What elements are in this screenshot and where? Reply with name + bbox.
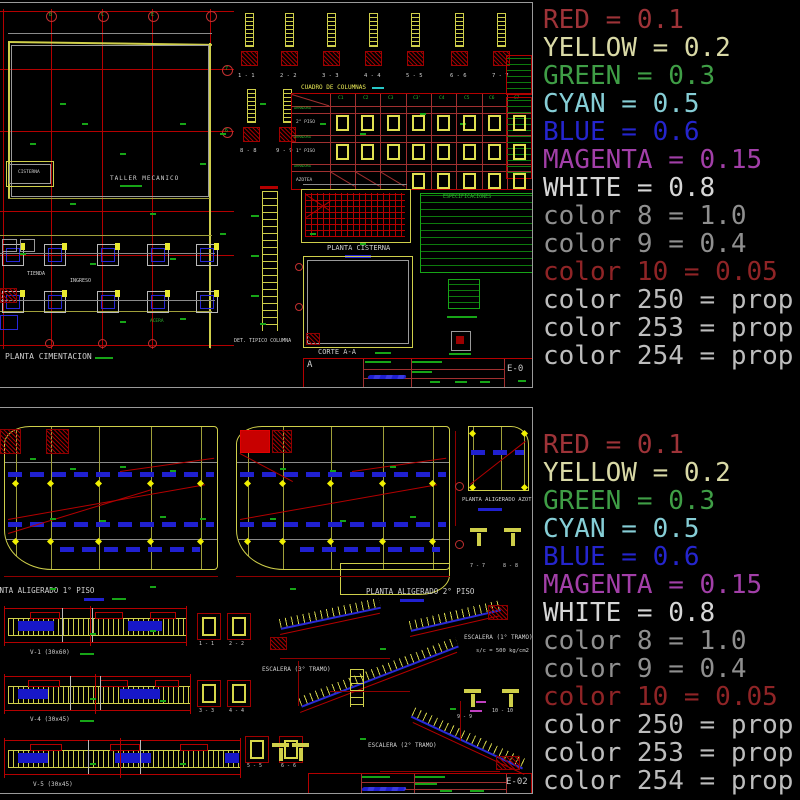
axis-bubble xyxy=(206,11,217,22)
dim-line xyxy=(4,642,186,643)
legend-entry: RED = 0.1 xyxy=(543,6,800,34)
column-hatch xyxy=(0,429,21,454)
section-label: 5 - 5 xyxy=(406,74,423,80)
axis-bubble xyxy=(455,482,464,491)
beam-label: V-4 (30x45) xyxy=(30,717,70,723)
legend-entry: color 9 = 0.4 xyxy=(543,655,800,683)
section-label: 2 - 2 xyxy=(229,642,244,647)
column-section-glyph xyxy=(361,144,374,160)
footing-section-detail xyxy=(238,87,264,147)
cut-line xyxy=(92,608,93,642)
title-note xyxy=(412,371,432,373)
col-header: C3' xyxy=(413,97,421,102)
scale-note xyxy=(372,87,384,89)
signature-scribble xyxy=(367,375,406,379)
column-section-glyph xyxy=(387,115,400,131)
dim-line xyxy=(380,771,500,772)
column-section-glyph xyxy=(463,173,476,189)
annotation-marks xyxy=(30,458,36,460)
section-label: 8 - 8 xyxy=(503,564,518,569)
taller-label: TALLER MECANICO xyxy=(110,176,179,182)
baston xyxy=(150,612,176,619)
scale-note xyxy=(84,598,104,601)
section-label: 3 - 3 xyxy=(199,709,214,714)
column-section-glyph xyxy=(412,173,425,189)
title-note xyxy=(455,381,467,383)
azotea-title: PLANTA ALIGERADO AZOTEA xyxy=(462,498,533,504)
legend-entry: YELLOW = 0.2 xyxy=(543,459,800,487)
section-label: 3 - 3 xyxy=(322,74,339,80)
landing-hatch xyxy=(270,637,287,650)
cad-preview-page: { "legend": { "entries": [ {"text": "RED… xyxy=(0,0,800,800)
col-header: C6 xyxy=(489,97,494,102)
sheet-bottom-slab-plans: PLANTA ALIGERADO 1° PISO PLANTA ALIGERAD… xyxy=(0,407,533,794)
footing xyxy=(97,291,119,313)
mini-table xyxy=(448,279,480,309)
rebar-band xyxy=(60,547,200,552)
section-label: 6 - 6 xyxy=(281,764,296,769)
footing-tie-line xyxy=(0,300,215,301)
legend-entry: color 254 = prop xyxy=(543,767,800,795)
stair-title: ESCALERA (2° TRAMO) xyxy=(368,743,437,749)
axis-bubble xyxy=(98,339,107,348)
legend-entry: WHITE = 0.8 xyxy=(543,174,800,202)
footing-section-detail xyxy=(446,11,472,71)
baston xyxy=(110,744,140,751)
axis-label: E xyxy=(151,13,154,18)
axis-bubble xyxy=(295,263,303,271)
plan1-title: PLANTA ALIGERADO 1° PISO xyxy=(0,587,94,595)
dim-tick xyxy=(90,606,91,646)
beam-t-section xyxy=(502,526,524,548)
legend-entry: color 250 = prop xyxy=(543,286,800,314)
legend-entry: GREEN = 0.3 xyxy=(543,487,800,515)
stair-section-detail xyxy=(462,687,484,709)
cut-line xyxy=(100,676,101,710)
column-hatch xyxy=(46,429,69,454)
section-label: 6 - 6 xyxy=(450,74,467,80)
baston xyxy=(30,612,60,619)
baston xyxy=(30,744,62,751)
tick xyxy=(251,295,259,297)
stair-title: ESCALERA (1° TRAMO) xyxy=(464,635,533,641)
beam-section xyxy=(227,680,251,707)
beam-label: V-5 (30x45) xyxy=(33,782,73,788)
row-label: AZOTEA xyxy=(296,179,312,184)
cut-line xyxy=(70,676,71,710)
beam-label: V-1 (30x60) xyxy=(30,650,70,656)
baston xyxy=(28,680,60,687)
title-block-letter: A xyxy=(307,361,312,370)
dim-line xyxy=(455,431,456,526)
scale-note xyxy=(112,598,126,600)
footing-section-detail xyxy=(360,11,386,71)
title-note xyxy=(365,361,391,363)
dim-line xyxy=(4,576,218,577)
small-box xyxy=(0,315,18,330)
title-note xyxy=(440,790,452,792)
section-label: 9 - 9 xyxy=(457,715,472,720)
note-bar xyxy=(447,316,477,318)
notes-box xyxy=(506,55,532,95)
footing-section-detail xyxy=(236,11,262,71)
column-section-glyph xyxy=(513,115,526,131)
dim-line xyxy=(4,774,240,775)
stair-section-detail xyxy=(500,687,522,709)
axis-bubble xyxy=(148,339,157,348)
axis-label: 7 xyxy=(225,67,228,72)
legend-entry: RED = 0.1 xyxy=(543,431,800,459)
column-section-glyph xyxy=(412,144,425,160)
column-section-glyph xyxy=(361,115,374,131)
column-section-glyph xyxy=(437,115,450,131)
dim-line xyxy=(330,691,410,692)
column-section-glyph xyxy=(412,115,425,131)
beam-section xyxy=(197,613,221,640)
col-header: C2 xyxy=(363,97,368,102)
magenta-dim xyxy=(476,701,486,703)
title-note xyxy=(362,776,390,778)
column-section-glyph xyxy=(336,115,349,131)
section-label: 4 - 4 xyxy=(229,709,244,714)
col-header: C4 xyxy=(439,97,444,102)
especificaciones-table xyxy=(420,193,533,273)
legend-entry: color 8 = 1.0 xyxy=(543,202,800,230)
small-box xyxy=(20,239,35,252)
axis-label: 6 xyxy=(225,129,228,134)
column-section-glyph xyxy=(437,144,450,160)
azotea-outline xyxy=(468,426,529,491)
axis-bubble xyxy=(295,303,303,311)
notes-box xyxy=(506,97,532,179)
footing xyxy=(44,244,66,266)
col-header: C1 xyxy=(338,97,343,102)
beam-section xyxy=(197,680,221,707)
dim-line xyxy=(236,576,450,577)
axis-bubble xyxy=(455,540,464,549)
ladder-top-mark xyxy=(260,186,278,189)
legend-entry: color 10 = 0.05 xyxy=(543,258,800,286)
title-note xyxy=(518,380,526,382)
detail-title: DET. TIPICO COLUMNA xyxy=(234,339,291,344)
stair-section-detail xyxy=(290,741,312,763)
small-box xyxy=(2,239,17,252)
corte-inner xyxy=(307,260,409,344)
rebar-band xyxy=(471,450,524,455)
footing-section-detail xyxy=(402,11,428,71)
legend-entry: BLUE = 0.6 xyxy=(543,543,800,571)
stair-section-detail xyxy=(270,741,292,763)
footing-section-detail xyxy=(318,11,344,71)
col-header: C5 xyxy=(464,97,469,102)
legend-entry: BLUE = 0.6 xyxy=(543,118,800,146)
tick xyxy=(251,215,259,217)
title-note xyxy=(470,790,484,792)
column-section-glyph xyxy=(463,115,476,131)
stair-dim xyxy=(300,652,457,713)
row-label: 1° PISO xyxy=(296,150,315,155)
section-label: 4 - 4 xyxy=(364,74,381,80)
pen-weight-legend-top: RED = 0.1YELLOW = 0.2GREEN = 0.3CYAN = 0… xyxy=(543,6,800,374)
dim-tick xyxy=(186,606,187,646)
column-ladder-detail xyxy=(262,191,278,331)
footing xyxy=(196,244,218,266)
dim-tick xyxy=(190,674,191,714)
rebar-band xyxy=(240,472,446,477)
landing-hatch xyxy=(488,605,508,620)
row-label: ARMADURA xyxy=(294,107,311,111)
column-section-glyph xyxy=(463,144,476,160)
rebar-ladder xyxy=(350,669,364,707)
beam-section xyxy=(245,736,269,763)
column-section-glyph xyxy=(488,115,501,131)
axis-label: C xyxy=(101,13,104,18)
legend-entry: YELLOW = 0.2 xyxy=(543,34,800,62)
rebar-chunk xyxy=(225,753,239,763)
row-label: ARMADURA xyxy=(294,165,311,169)
row-label: ARMADURA xyxy=(294,136,311,140)
beam-section xyxy=(227,613,251,640)
column-section-glyph xyxy=(488,144,501,160)
column-section-glyph xyxy=(387,144,400,160)
wall-bottom xyxy=(8,198,210,199)
footing xyxy=(196,291,218,313)
cut-line xyxy=(62,608,63,642)
dim-tick xyxy=(95,674,96,714)
table-title: CUADRO DE COLUMNAS xyxy=(301,85,366,91)
dim-line xyxy=(4,608,186,609)
dim-line xyxy=(8,33,212,34)
cut-line xyxy=(140,740,141,774)
title-note xyxy=(480,381,490,383)
dim-tick xyxy=(120,738,121,778)
stair-title: ESCALERA (3° TRAMO) xyxy=(262,667,331,673)
dim-line xyxy=(460,701,461,741)
column-section-glyph xyxy=(437,173,450,189)
section-label: 5 - 5 xyxy=(247,764,262,769)
espec-title: ESPECIFICACIONES xyxy=(443,195,491,200)
dim-tick xyxy=(240,738,241,778)
column-hatch xyxy=(272,430,292,453)
scale-note xyxy=(95,357,113,359)
title-note xyxy=(430,381,440,383)
title-note xyxy=(415,776,445,778)
signature-scribble xyxy=(361,787,406,791)
cisterna-label: CISTERNA xyxy=(18,171,40,176)
stair-subtitle: s/c = 500 kg/cm2 xyxy=(476,649,529,655)
legend-entry: color 253 = prop xyxy=(543,314,800,342)
column-section-glyph xyxy=(513,173,526,189)
legend-entry: color 254 = prop xyxy=(543,342,800,370)
rebar-band xyxy=(8,472,214,477)
acera-label: ACERA xyxy=(150,320,164,325)
sheet-top-foundation-plan: B C E 7 6 CISTERNA TALLER MECANICO TIEND… xyxy=(0,2,533,388)
corte-title: CORTE A-A xyxy=(318,349,356,356)
scale-note xyxy=(80,720,94,722)
baston xyxy=(100,680,128,687)
cisterna-slab-mesh xyxy=(305,193,405,237)
annotation-marks xyxy=(60,103,66,105)
legend-entry: CYAN = 0.5 xyxy=(543,90,800,118)
legend-entry: GREEN = 0.3 xyxy=(543,62,800,90)
column-section-glyph xyxy=(488,173,501,189)
rebar-chunk xyxy=(18,621,54,631)
scale-note xyxy=(375,352,391,354)
section-label: 8 - 8 xyxy=(240,149,257,155)
rebar-chunk xyxy=(18,753,48,763)
section-label: 7 - 7 xyxy=(470,564,485,569)
title-note xyxy=(412,361,442,363)
row-label: 2° PISO xyxy=(296,121,315,126)
legend-entry: color 250 = prop xyxy=(543,711,800,739)
col-header: C3 xyxy=(388,97,393,102)
scale-note xyxy=(400,599,424,602)
section-label: 1 - 1 xyxy=(238,74,255,80)
scale-note xyxy=(478,508,502,511)
footing-tie-line xyxy=(0,253,215,254)
wall-lower-1 xyxy=(0,235,212,236)
legend-entry: MAGENTA = 0.15 xyxy=(543,146,800,174)
plan2-title: PLANTA ALIGERADO 2° PISO xyxy=(366,588,474,596)
pen-weight-legend-bottom: RED = 0.1YELLOW = 0.2GREEN = 0.3CYAN = 0… xyxy=(543,431,800,797)
note-bar xyxy=(449,353,471,355)
dim-line xyxy=(303,184,407,185)
hatch-block xyxy=(0,288,17,303)
column-section-glyph xyxy=(336,144,349,160)
rebar-chunk xyxy=(18,689,48,699)
plan-title-cisterna: PLANTA CISTERNA xyxy=(327,245,390,252)
sheet-number: E-02 xyxy=(506,778,528,787)
baston xyxy=(155,680,179,687)
axis-bubble xyxy=(45,339,54,348)
legend-entry: color 253 = prop xyxy=(543,739,800,767)
legend-entry: color 10 = 0.05 xyxy=(543,683,800,711)
footing xyxy=(97,244,119,266)
plan-title-cimentacion: PLANTA CIMENTACION xyxy=(5,353,92,361)
sheet-number: E-0 xyxy=(507,365,523,374)
legend-entry: color 8 = 1.0 xyxy=(543,627,800,655)
dim-tick xyxy=(4,674,5,714)
baston xyxy=(180,744,208,751)
rebar-chunk xyxy=(120,689,160,699)
footing-section-detail xyxy=(276,11,302,71)
dim-line xyxy=(4,740,240,741)
ingreso-label: INGRESO xyxy=(70,279,91,284)
landing-hatch xyxy=(496,756,520,770)
dim-tick xyxy=(4,738,5,778)
beam-t-section xyxy=(468,526,490,548)
stair-run xyxy=(279,598,381,630)
footing xyxy=(147,244,169,266)
title-note xyxy=(415,783,437,785)
section-label: 2 - 2 xyxy=(280,74,297,80)
scale-note xyxy=(120,185,142,187)
baston xyxy=(95,612,123,619)
dim-line xyxy=(280,658,390,659)
tick xyxy=(251,255,259,257)
dim-line xyxy=(4,710,190,711)
axis-label: B xyxy=(49,13,52,18)
hatch-block xyxy=(306,333,320,345)
section-label: 1 - 1 xyxy=(199,642,214,647)
footing xyxy=(147,291,169,313)
rebar-band xyxy=(300,547,440,552)
rebar-chunk xyxy=(128,621,162,631)
dim-tick xyxy=(4,606,5,646)
cut-line xyxy=(88,740,89,774)
tienda-label: TIENDA xyxy=(27,272,45,277)
column-solid xyxy=(240,430,270,453)
small-detail-mark xyxy=(456,336,464,344)
legend-entry: color 9 = 0.4 xyxy=(543,230,800,258)
section-label: 10 - 10 xyxy=(492,709,513,714)
scale-note xyxy=(80,653,94,655)
rebar-band xyxy=(240,522,446,527)
footing xyxy=(44,291,66,313)
legend-entry: MAGENTA = 0.15 xyxy=(543,571,800,599)
legend-entry: CYAN = 0.5 xyxy=(543,515,800,543)
legend-entry: WHITE = 0.8 xyxy=(543,599,800,627)
magenta-dim xyxy=(470,710,482,712)
column-section-glyph xyxy=(513,144,526,160)
dim-line xyxy=(4,676,190,677)
